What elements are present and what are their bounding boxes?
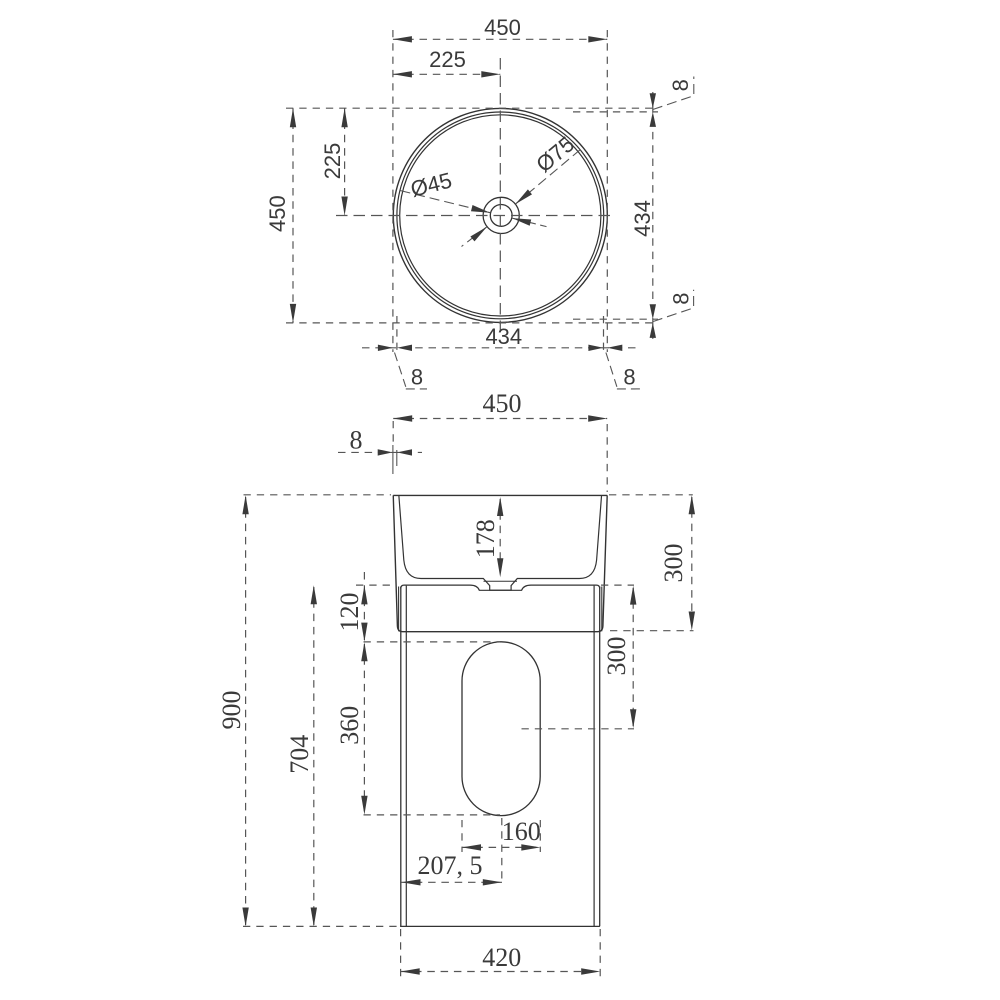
svg-text:8: 8 <box>669 292 694 304</box>
svg-text:900: 900 <box>217 691 246 730</box>
svg-text:178: 178 <box>471 519 500 558</box>
svg-text:450: 450 <box>483 389 522 418</box>
svg-text:8: 8 <box>411 365 423 390</box>
svg-text:434: 434 <box>630 200 655 237</box>
svg-text:225: 225 <box>320 143 345 180</box>
svg-text:704: 704 <box>285 735 314 774</box>
svg-text:420: 420 <box>482 943 521 972</box>
svg-text:450: 450 <box>265 195 290 232</box>
svg-text:8: 8 <box>350 426 363 455</box>
svg-text:300: 300 <box>659 544 688 583</box>
svg-text:300: 300 <box>602 637 631 676</box>
svg-text:160: 160 <box>502 817 541 846</box>
svg-text:360: 360 <box>335 706 364 745</box>
svg-text:120: 120 <box>335 593 364 632</box>
svg-text:8: 8 <box>623 365 635 390</box>
svg-text:Ø75: Ø75 <box>531 131 579 177</box>
svg-text:207, 5: 207, 5 <box>418 851 483 880</box>
svg-text:225: 225 <box>429 47 466 72</box>
svg-text:Ø45: Ø45 <box>408 168 454 202</box>
svg-text:434: 434 <box>485 324 522 349</box>
svg-text:450: 450 <box>484 15 521 40</box>
svg-text:8: 8 <box>668 79 693 91</box>
